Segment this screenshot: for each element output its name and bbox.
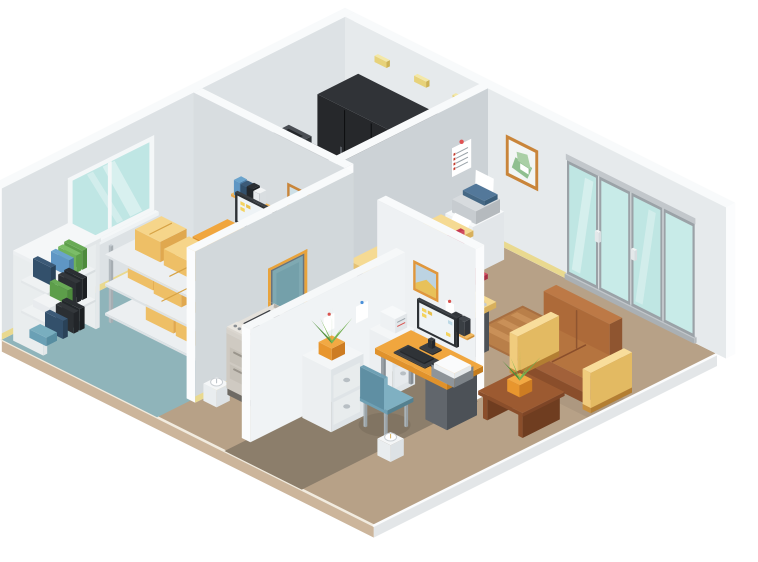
isometric-office-scene: Isometric cutaway illustration of an off… [0, 0, 758, 562]
office-cutaway-illustration: Isometric cutaway illustration of an off… [0, 0, 758, 562]
